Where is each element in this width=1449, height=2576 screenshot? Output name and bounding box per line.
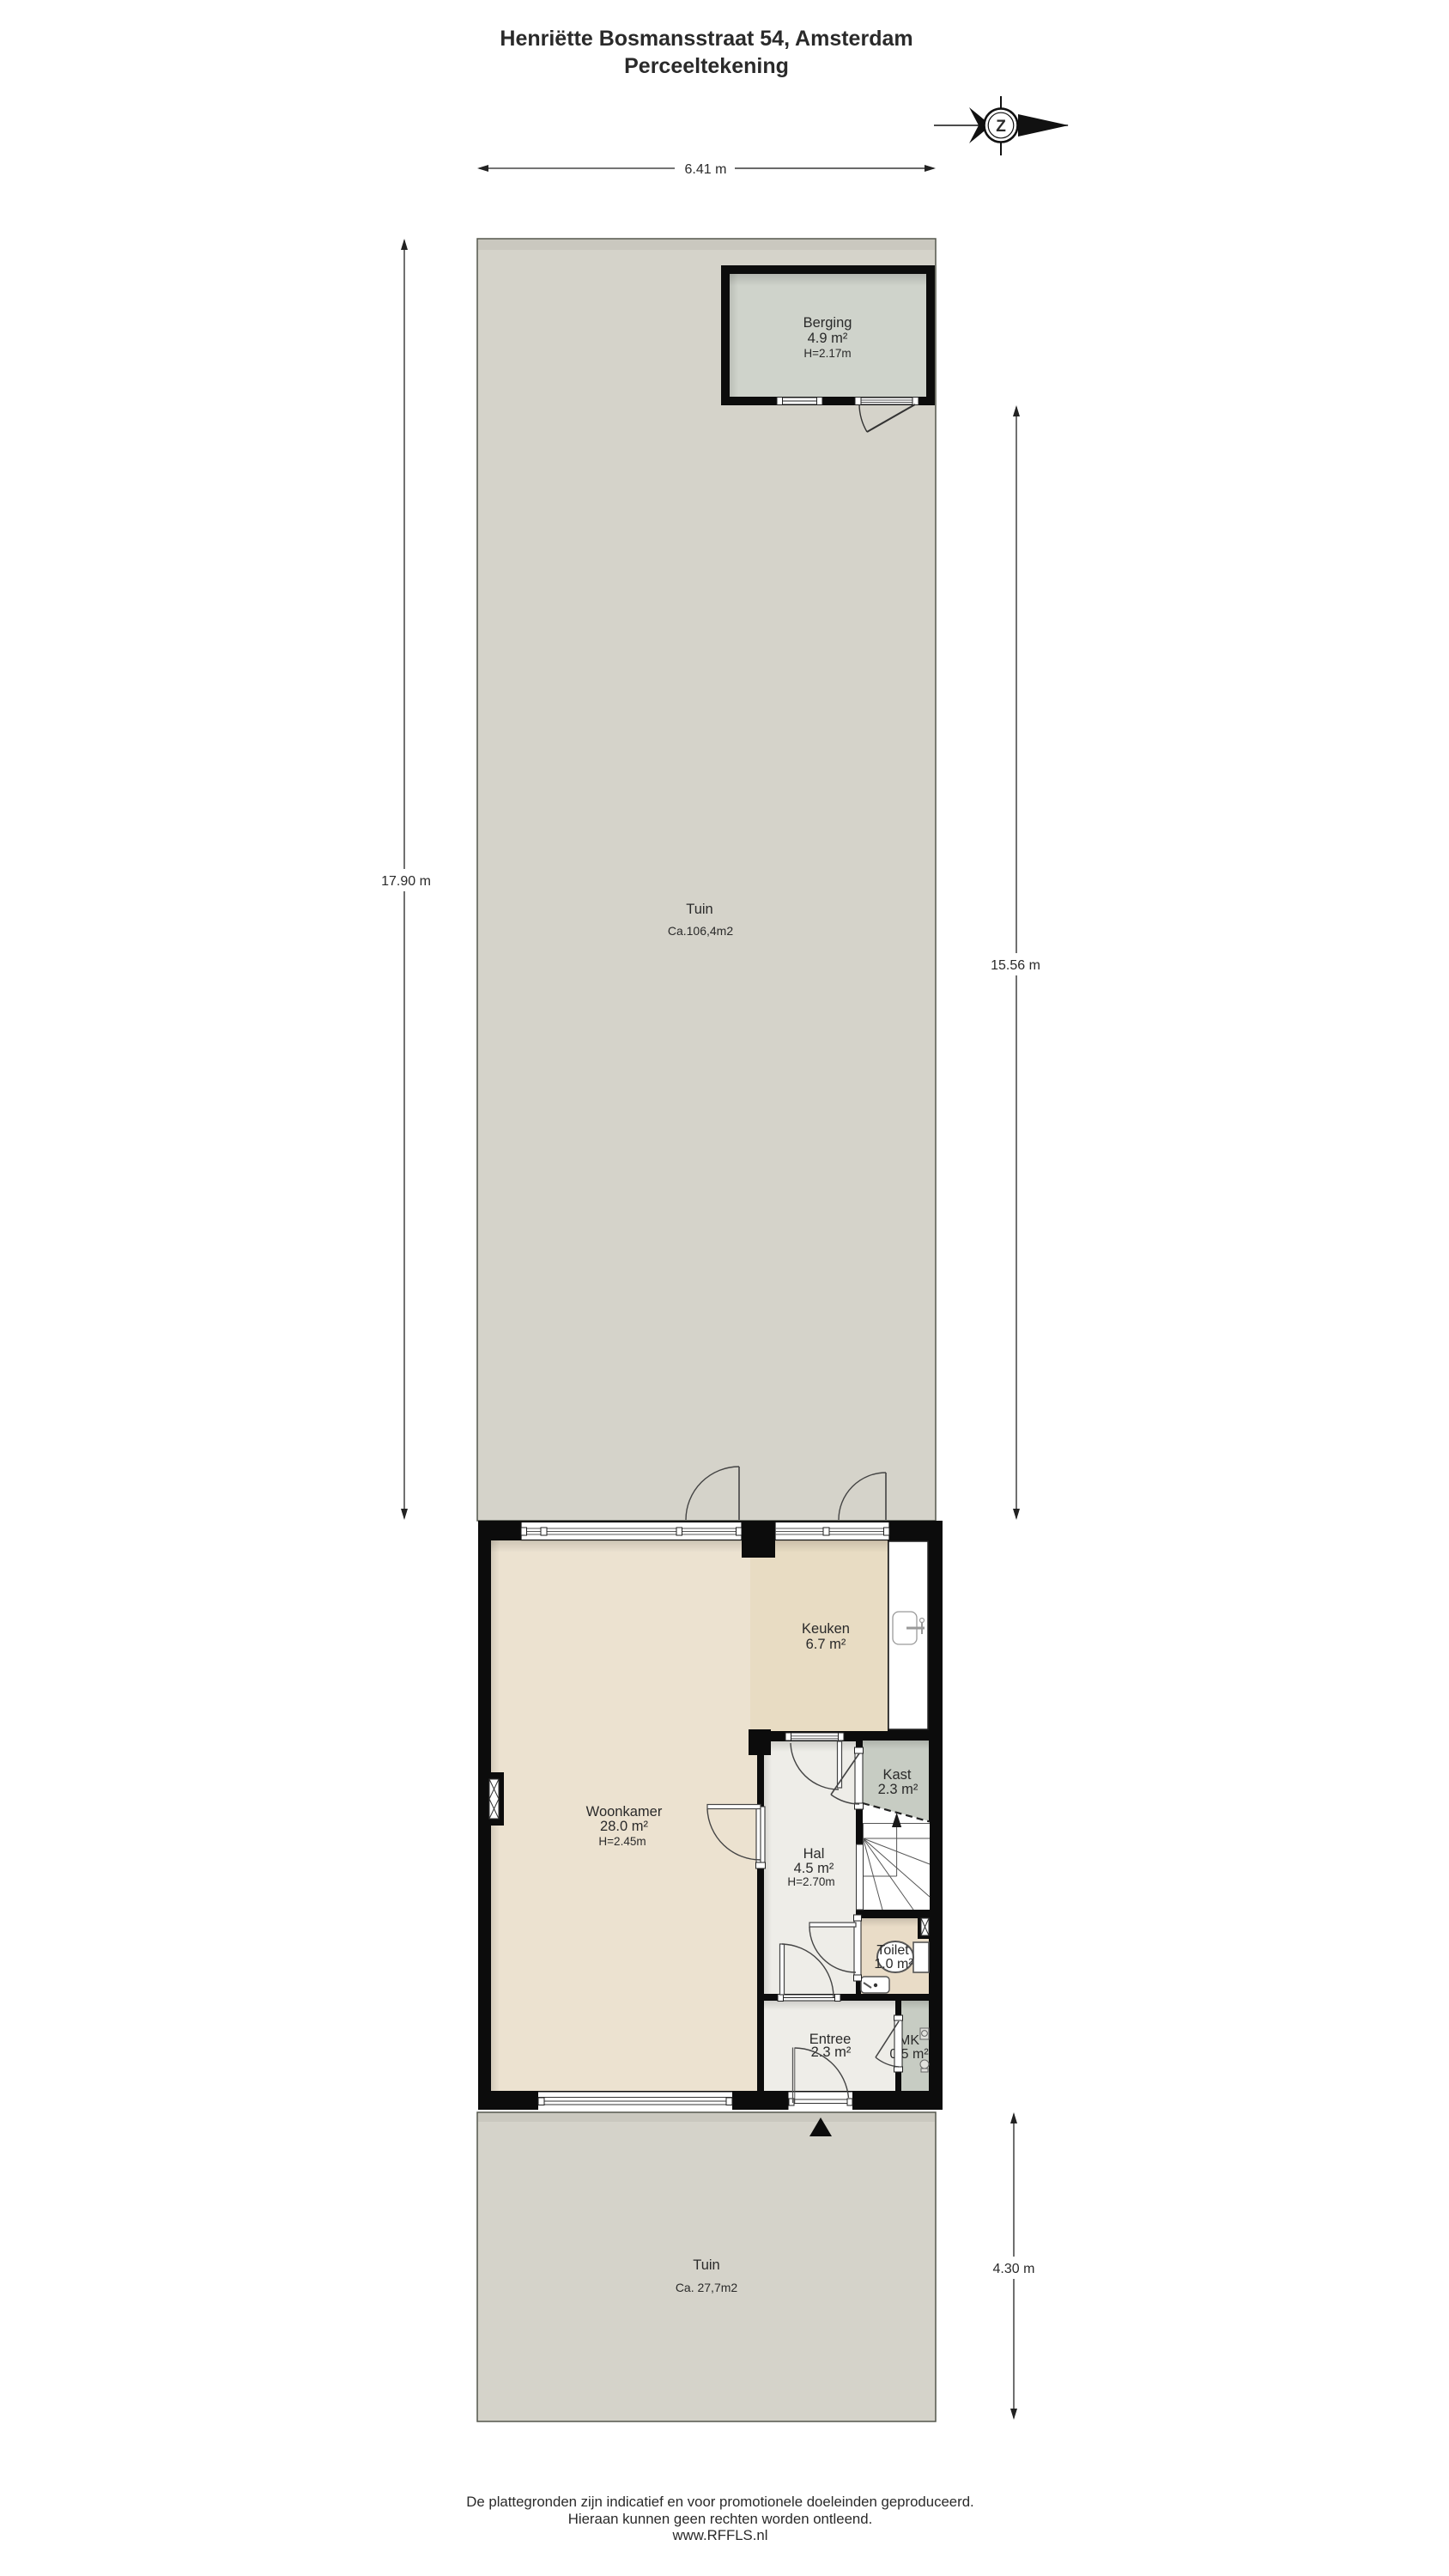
svg-text:Hieraan kunnen geen rechten wo: Hieraan kunnen geen rechten worden ontle… (568, 2511, 873, 2527)
svg-text:Keuken: Keuken (802, 1621, 850, 1637)
svg-text:17.90 m: 17.90 m (381, 874, 431, 889)
svg-text:Woonkamer: Woonkamer (586, 1804, 663, 1820)
svg-text:15.56 m: 15.56 m (991, 958, 1040, 973)
svg-text:Tuin: Tuin (686, 902, 713, 917)
svg-text:Kast: Kast (882, 1767, 911, 1783)
svg-text:2.3 m²: 2.3 m² (811, 2044, 852, 2060)
svg-text:www.RFFLS.nl: www.RFFLS.nl (672, 2527, 768, 2543)
svg-text:Z: Z (996, 118, 1006, 136)
svg-text:6.41 m: 6.41 m (685, 162, 727, 177)
svg-text:Toilet: Toilet (876, 1943, 909, 1958)
svg-text:6.7 m²: 6.7 m² (806, 1637, 846, 1652)
svg-text:De plattegronden zijn indicati: De plattegronden zijn indicatief en voor… (466, 2494, 973, 2510)
svg-text:Tuin: Tuin (693, 2257, 720, 2273)
svg-text:2.3 m²: 2.3 m² (878, 1782, 919, 1797)
svg-text:28.0 m²: 28.0 m² (600, 1819, 648, 1834)
svg-text:Ca.106,4m2: Ca.106,4m2 (668, 924, 733, 938)
svg-text:Berging: Berging (803, 315, 852, 331)
svg-text:4.30 m: 4.30 m (993, 2262, 1035, 2276)
svg-text:H=2.17m: H=2.17m (803, 347, 851, 360)
svg-text:Perceeltekening: Perceeltekening (624, 54, 789, 78)
svg-text:Hal: Hal (803, 1846, 825, 1862)
svg-text:Henriëtte Bosmansstraat 54, Am: Henriëtte Bosmansstraat 54, Amsterdam (500, 27, 912, 51)
svg-text:H=2.70m: H=2.70m (787, 1875, 834, 1888)
svg-text:Ca. 27,7m2: Ca. 27,7m2 (676, 2281, 738, 2294)
svg-text:4.9 m²: 4.9 m² (808, 331, 848, 346)
svg-text:H=2.45m: H=2.45m (598, 1835, 646, 1848)
svg-text:4.5 m²: 4.5 m² (794, 1861, 834, 1876)
svg-text:1.0 m²: 1.0 m² (874, 1957, 913, 1971)
